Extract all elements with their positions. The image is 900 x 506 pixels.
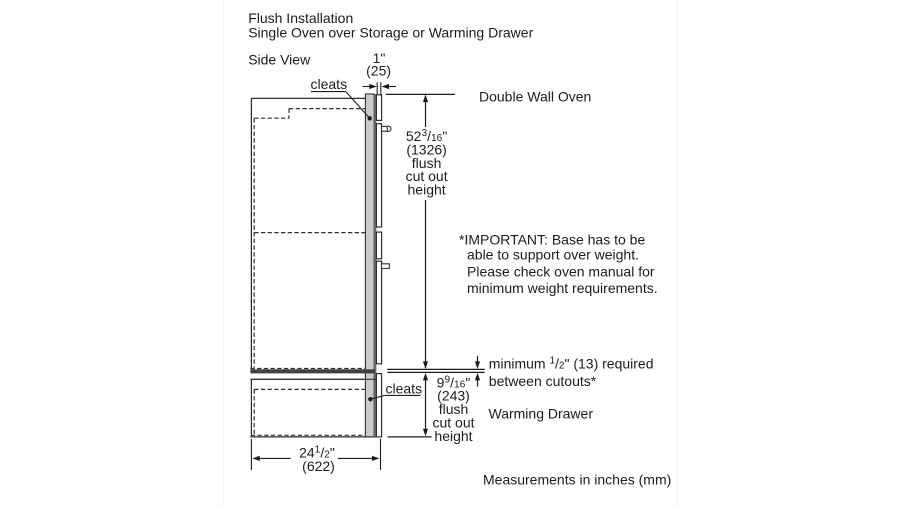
svg-text:height: height	[408, 182, 446, 198]
svg-text:height: height	[434, 428, 472, 444]
svg-text:minimum weight requirements.: minimum weight requirements.	[467, 280, 658, 296]
svg-text:(25): (25)	[366, 62, 391, 78]
svg-text:cleats: cleats	[386, 380, 423, 396]
svg-text:Double Wall Oven: Double Wall Oven	[479, 88, 591, 104]
svg-text:between cutouts*: between cutouts*	[489, 373, 597, 389]
svg-text:*IMPORTANT: Base has to be: *IMPORTANT: Base has to be	[459, 231, 645, 247]
svg-text:Warming Drawer: Warming Drawer	[489, 406, 594, 422]
svg-text:Single Oven over Storage or Wa: Single Oven over Storage or Warming Draw…	[248, 25, 533, 41]
svg-text:cleats: cleats	[311, 76, 348, 92]
svg-text:(622): (622)	[302, 458, 335, 474]
svg-text:Side View: Side View	[248, 51, 311, 67]
svg-text:able to support over weight.: able to support over weight.	[467, 247, 639, 263]
svg-text:Measurements in inches (mm): Measurements in inches (mm)	[483, 471, 671, 487]
svg-text:minimum 1/2" (13) required: minimum 1/2" (13) required	[489, 356, 654, 372]
svg-text:Please check oven manual for: Please check oven manual for	[467, 263, 655, 279]
